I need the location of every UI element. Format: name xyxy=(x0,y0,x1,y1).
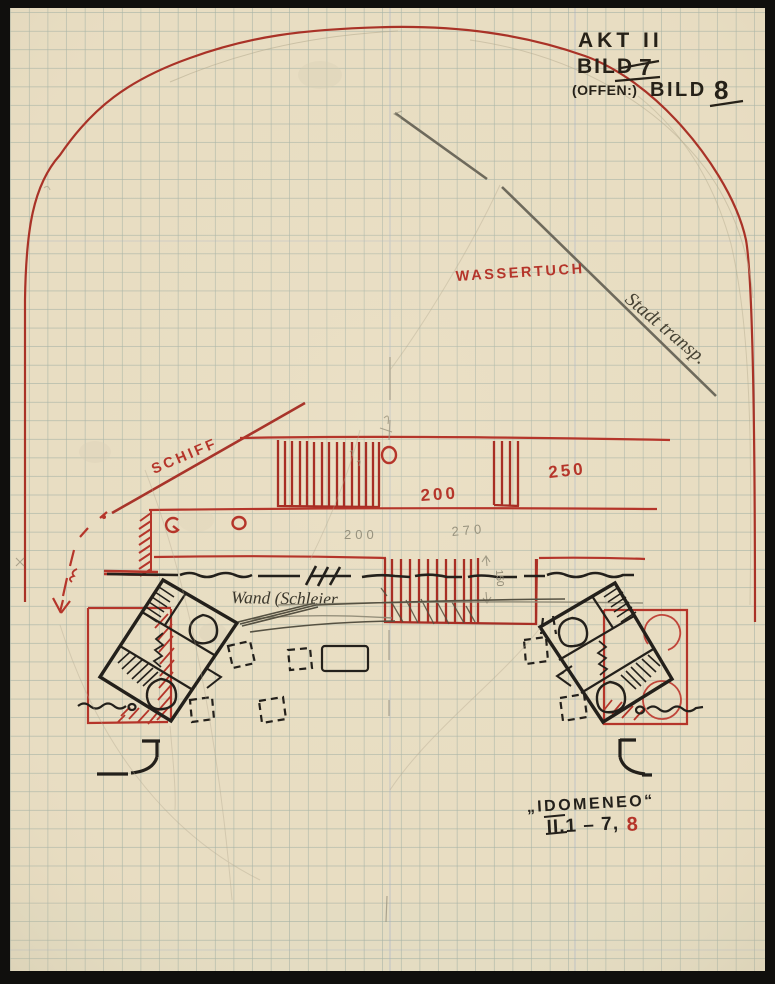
svg-text:Wand (Schleier: Wand (Schleier xyxy=(231,587,338,609)
svg-text:BILD: BILD xyxy=(650,79,707,101)
svg-text:(OFFEN:): (OFFEN:) xyxy=(572,82,637,98)
svg-text:7: 7 xyxy=(639,54,655,80)
svg-text:250: 250 xyxy=(547,459,586,482)
svg-text:8: 8 xyxy=(714,75,728,105)
svg-text:270: 270 xyxy=(451,521,486,539)
svg-text:200: 200 xyxy=(420,483,459,505)
svg-text:II.1 – 7,: II.1 – 7, xyxy=(546,813,619,838)
svg-text:8: 8 xyxy=(626,813,638,836)
svg-text:150: 150 xyxy=(493,569,505,587)
svg-text:AKT II: AKT II xyxy=(578,29,663,52)
svg-text:200: 200 xyxy=(344,527,378,542)
